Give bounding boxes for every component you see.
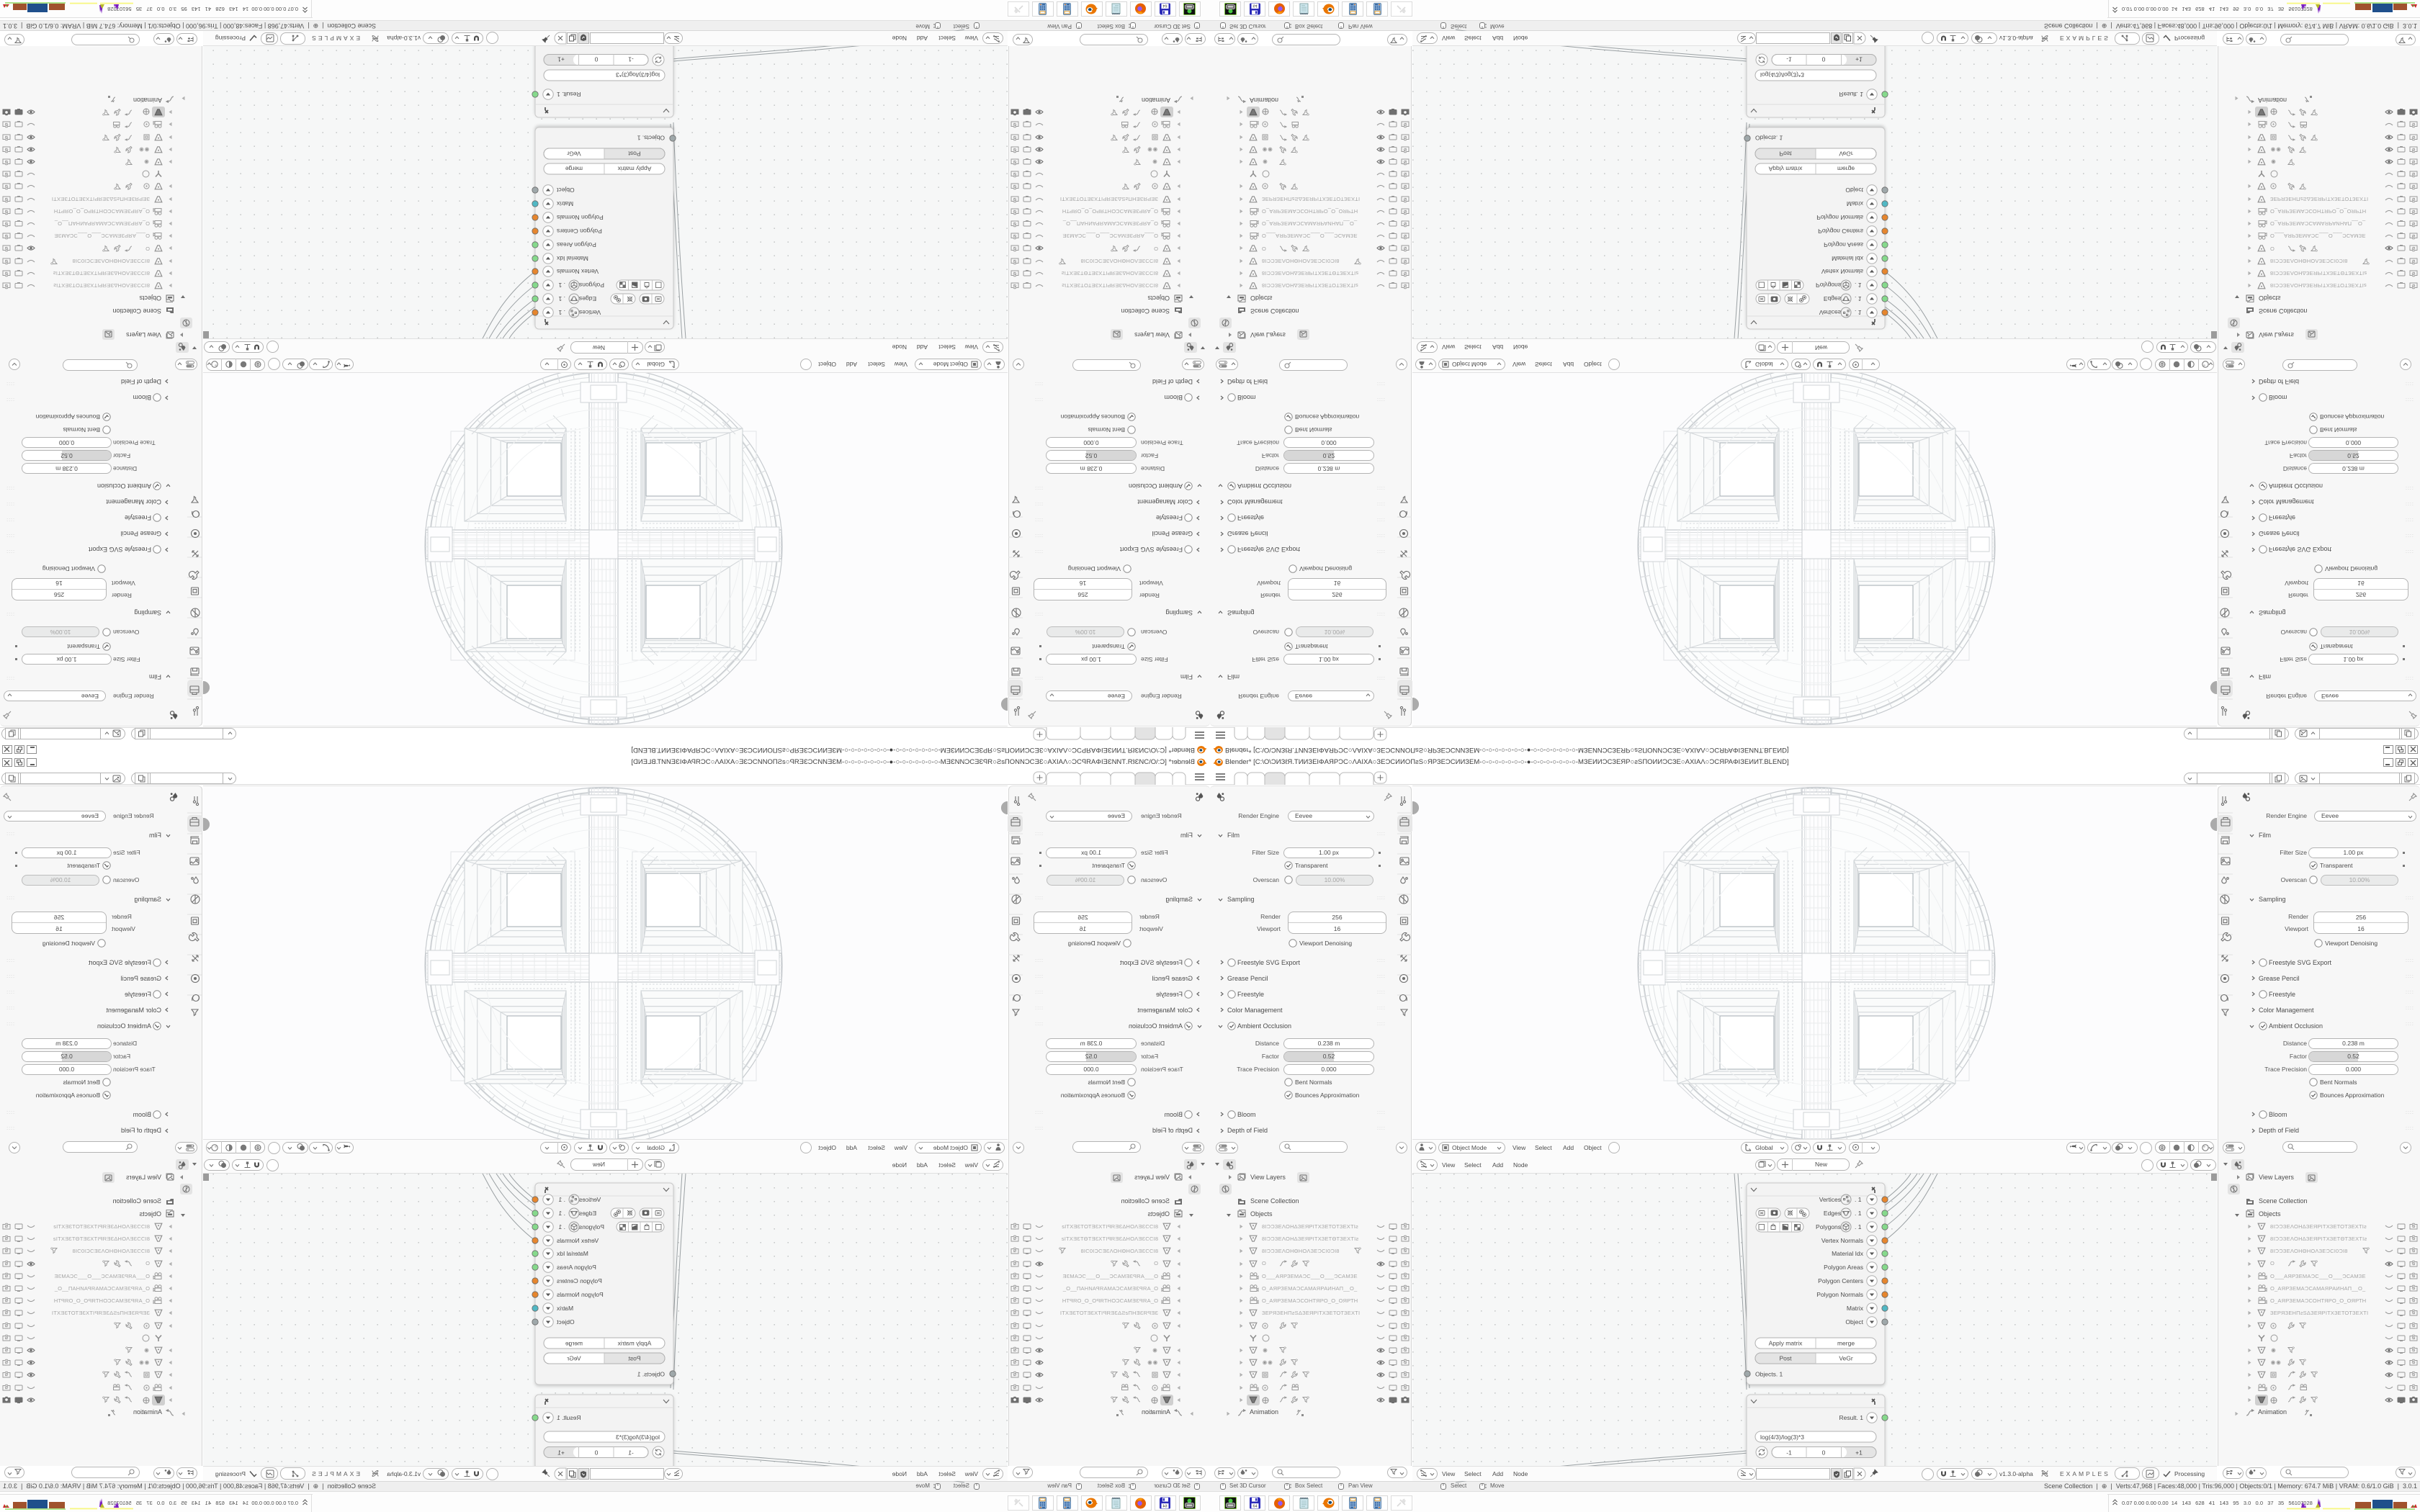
svg-text:Vertices: Vertices [1819,1196,1841,1203]
svg-text:Polygon Areas: Polygon Areas [1824,1264,1863,1271]
svg-text:log(4/3)/log(3)*3: log(4/3)/log(3)*3 [1760,1434,1804,1441]
svg-text:+1: +1 [1855,1449,1863,1457]
svg-text:. 1: . 1 [1855,1210,1862,1217]
svg-text:Object: Object [1845,1318,1863,1326]
svg-text:Polygons: Polygons [1816,1223,1841,1230]
svg-text:Apply matrix: Apply matrix [1769,1340,1803,1347]
svg-text:64: 64 [1252,1505,1257,1509]
svg-text:. 1: . 1 [1855,1223,1862,1230]
svg-text:Vertex Normals: Vertex Normals [1821,1237,1863,1244]
svg-text:-1: -1 [1786,1449,1792,1457]
svg-text:Edges: Edges [1824,1210,1841,1217]
svg-text:Objects. 1: Objects. 1 [1755,1371,1783,1378]
svg-text:VeGr: VeGr [1839,1355,1853,1362]
svg-text:Matrix: Matrix [1847,1305,1864,1312]
svg-text:Material Idx: Material Idx [1832,1250,1864,1257]
svg-text:. 1: . 1 [1855,1196,1862,1203]
svg-text:merge: merge [1837,1340,1855,1347]
svg-text:Polygon Normals: Polygon Normals [1816,1291,1863,1298]
svg-text:Result. 1: Result. 1 [1839,1414,1863,1421]
svg-text:Polygon Centers: Polygon Centers [1818,1277,1863,1284]
svg-text:0: 0 [1822,1449,1826,1457]
svg-text:Post: Post [1779,1355,1792,1362]
